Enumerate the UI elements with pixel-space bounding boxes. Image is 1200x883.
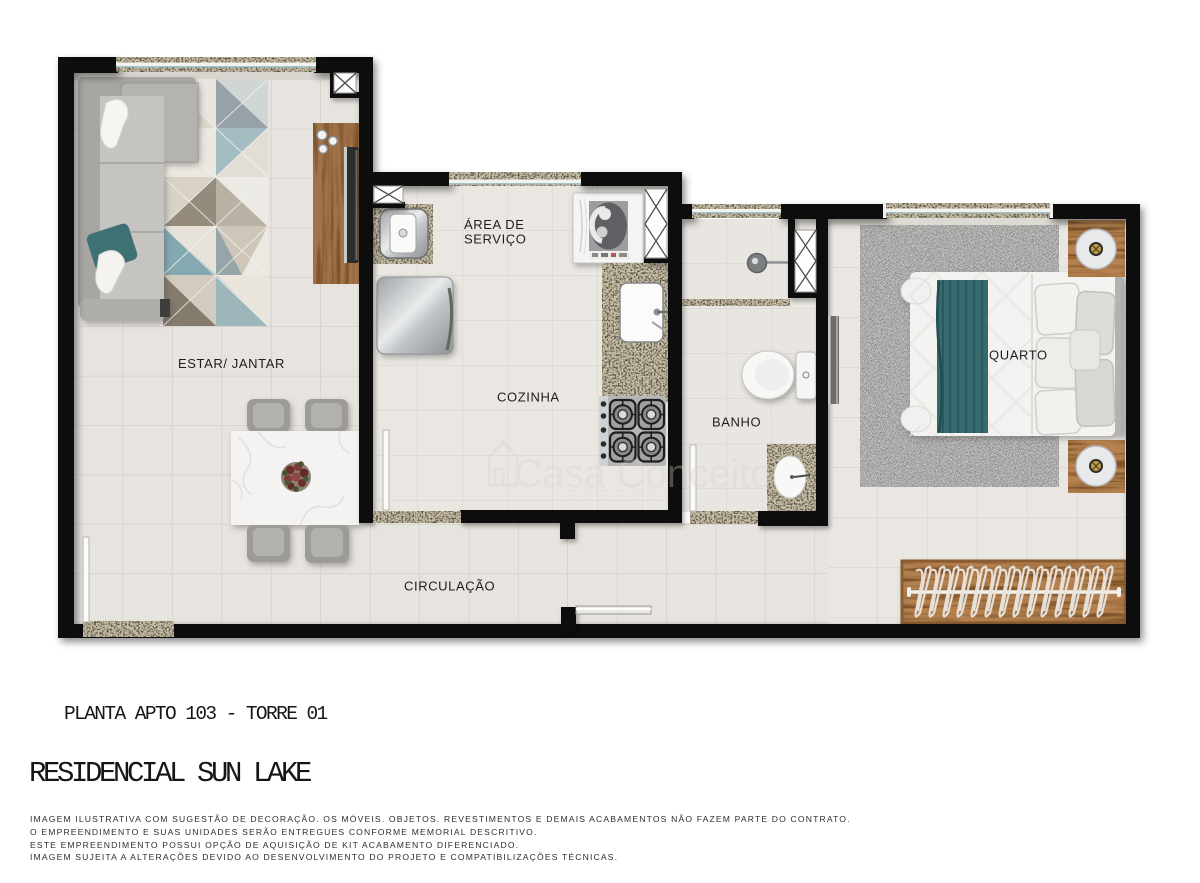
svg-text:BANHO: BANHO bbox=[712, 415, 761, 430]
svg-text:QUARTO: QUARTO bbox=[989, 348, 1048, 363]
svg-text:IMAGEM ILUSTRATIVA COM SUGEST: IMAGEM ILUSTRATIVA COM SUGESTÃO DE DECOR… bbox=[30, 814, 851, 824]
svg-text:ÁREA DE: ÁREA DE bbox=[464, 217, 525, 232]
svg-text:CIRCULAÇÃO: CIRCULAÇÃO bbox=[404, 579, 495, 594]
svg-text:ESTAR/ JANTAR: ESTAR/ JANTAR bbox=[178, 356, 285, 371]
svg-text:PLANTA APTO 103 - TORRE 01: PLANTA APTO 103 - TORRE 01 bbox=[64, 703, 328, 725]
svg-text:Imóveis: Imóveis bbox=[556, 492, 660, 503]
svg-text:SERVIÇO: SERVIÇO bbox=[464, 232, 526, 247]
svg-text:Casa Conceito: Casa Conceito bbox=[514, 452, 772, 496]
svg-text:IMAGEM SUJEITA A ALTERAÇÕES DE: IMAGEM SUJEITA A ALTERAÇÕES DEVIDO AO DE… bbox=[30, 852, 618, 862]
svg-text:ESTE EMPREENDIMENTO POSSUI OPÇ: ESTE EMPREENDIMENTO POSSUI OPÇÃO DE AQUI… bbox=[30, 840, 519, 850]
svg-text:RESIDENCIAL SUN LAKE: RESIDENCIAL SUN LAKE bbox=[29, 757, 311, 790]
svg-text:O EMPREENDIMENTO E SUAS UNIDAD: O EMPREENDIMENTO E SUAS UNIDADES SERÃO E… bbox=[30, 827, 538, 837]
svg-text:COZINHA: COZINHA bbox=[497, 390, 560, 405]
